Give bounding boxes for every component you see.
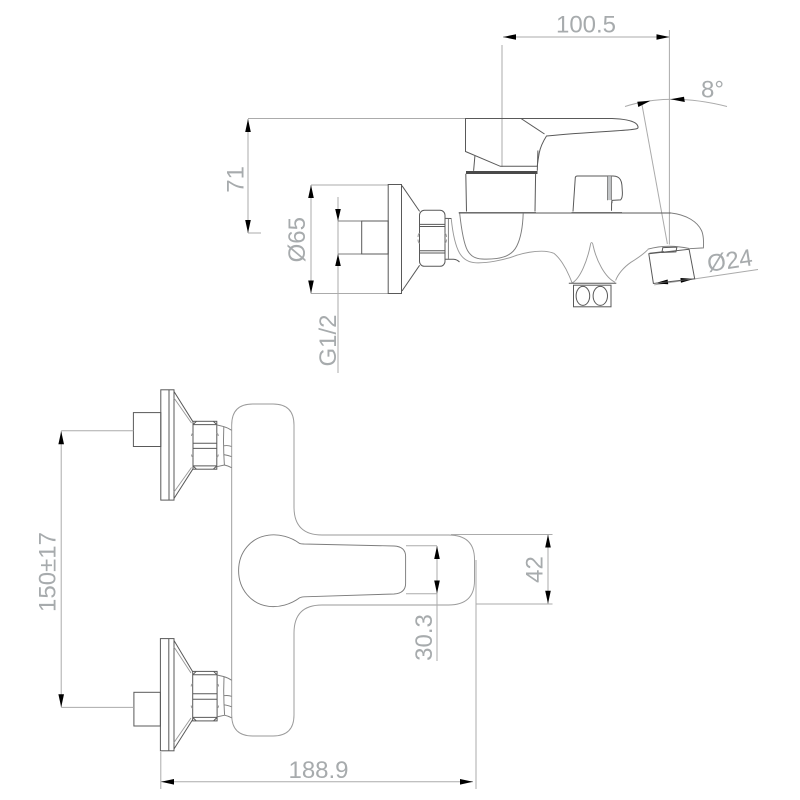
svg-text:100.5: 100.5 xyxy=(556,12,616,39)
svg-text:8°: 8° xyxy=(701,77,724,104)
svg-text:G1/2: G1/2 xyxy=(315,314,342,366)
svg-text:30.3: 30.3 xyxy=(411,614,438,661)
svg-text:188.9: 188.9 xyxy=(288,757,348,784)
svg-text:Ø65: Ø65 xyxy=(284,217,311,262)
svg-text:150±17: 150±17 xyxy=(35,532,62,612)
svg-text:71: 71 xyxy=(223,166,250,193)
svg-text:42: 42 xyxy=(522,556,549,583)
